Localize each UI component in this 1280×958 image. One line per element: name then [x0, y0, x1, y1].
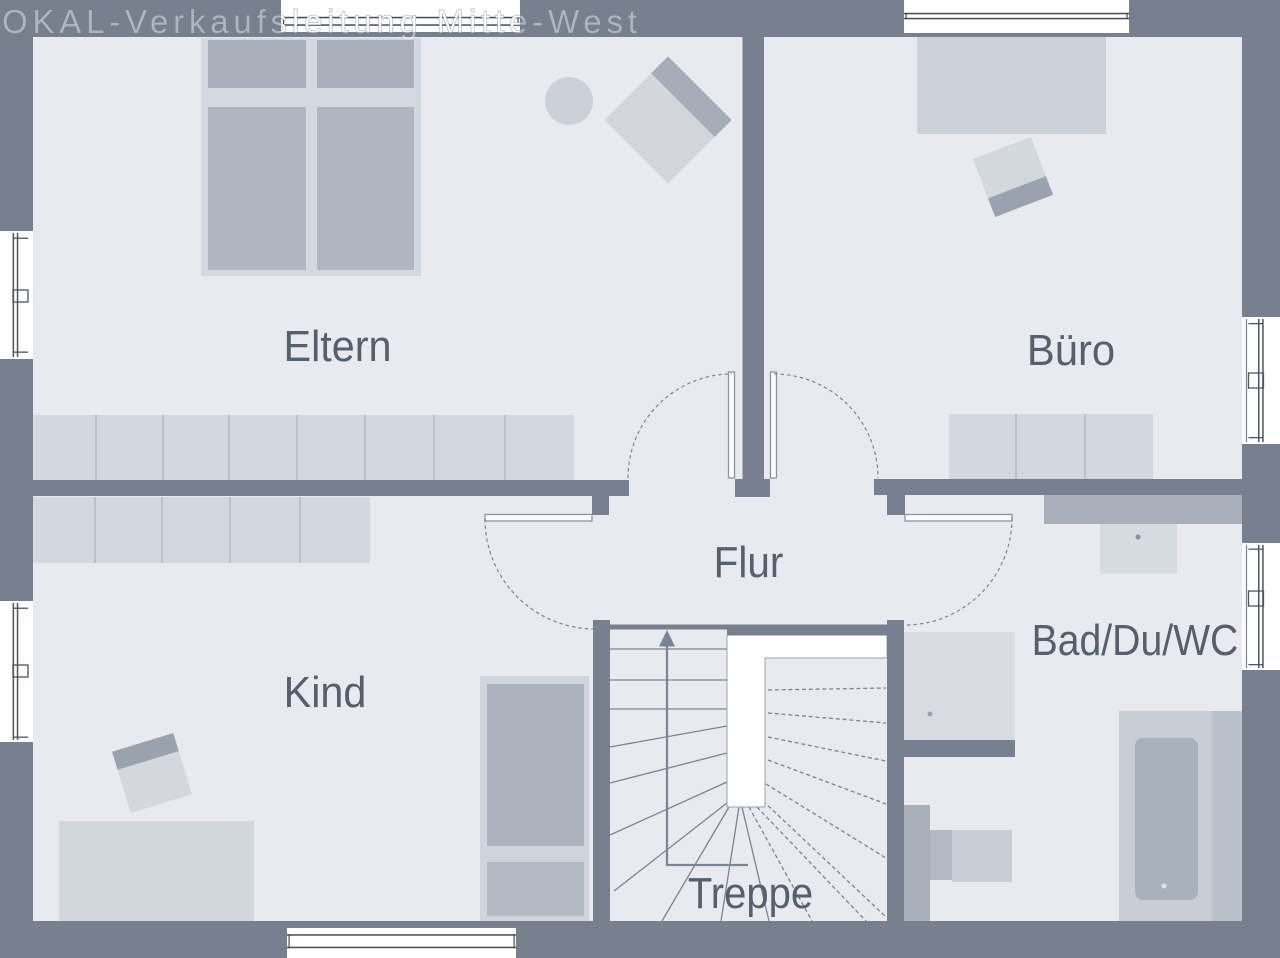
svg-text:Eltern: Eltern — [283, 322, 391, 371]
svg-text:Bad/Du/WC: Bad/Du/WC — [1032, 615, 1239, 665]
svg-text:OKAL-Verkaufsleitung Mitte-Wes: OKAL-Verkaufsleitung Mitte-West — [2, 3, 642, 40]
svg-text:Büro: Büro — [1027, 326, 1115, 375]
svg-text:Flur: Flur — [714, 537, 784, 586]
svg-text:Treppe: Treppe — [688, 868, 813, 917]
svg-text:Kind: Kind — [284, 668, 367, 717]
